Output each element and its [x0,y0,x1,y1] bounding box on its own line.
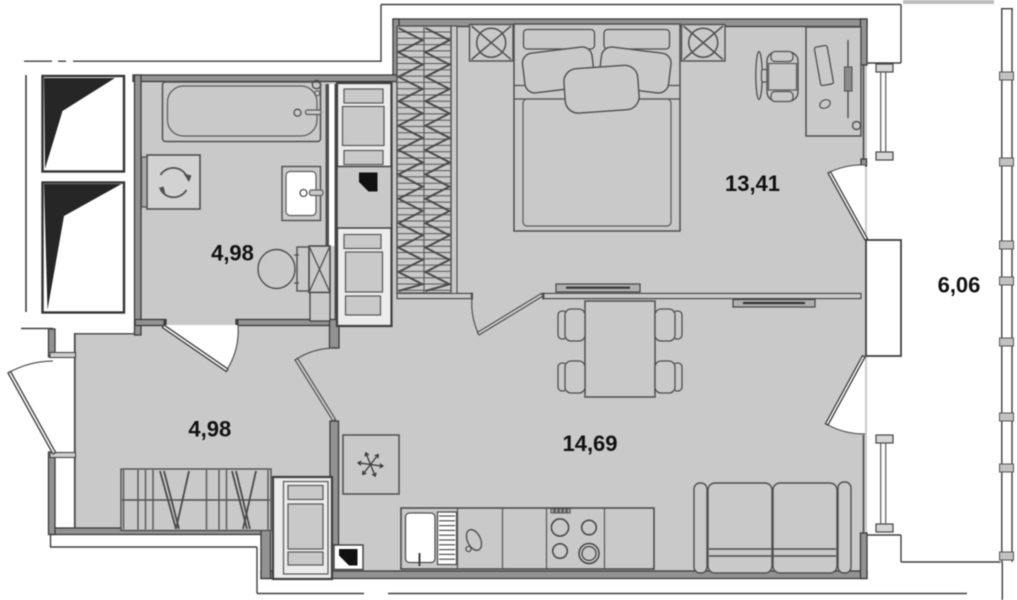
svg-text:14,69: 14,69 [562,431,617,456]
svg-text:13,41: 13,41 [725,171,780,196]
svg-text:4,98: 4,98 [188,416,231,441]
svg-text:6,06: 6,06 [938,273,981,298]
svg-text:4,98: 4,98 [211,240,254,265]
